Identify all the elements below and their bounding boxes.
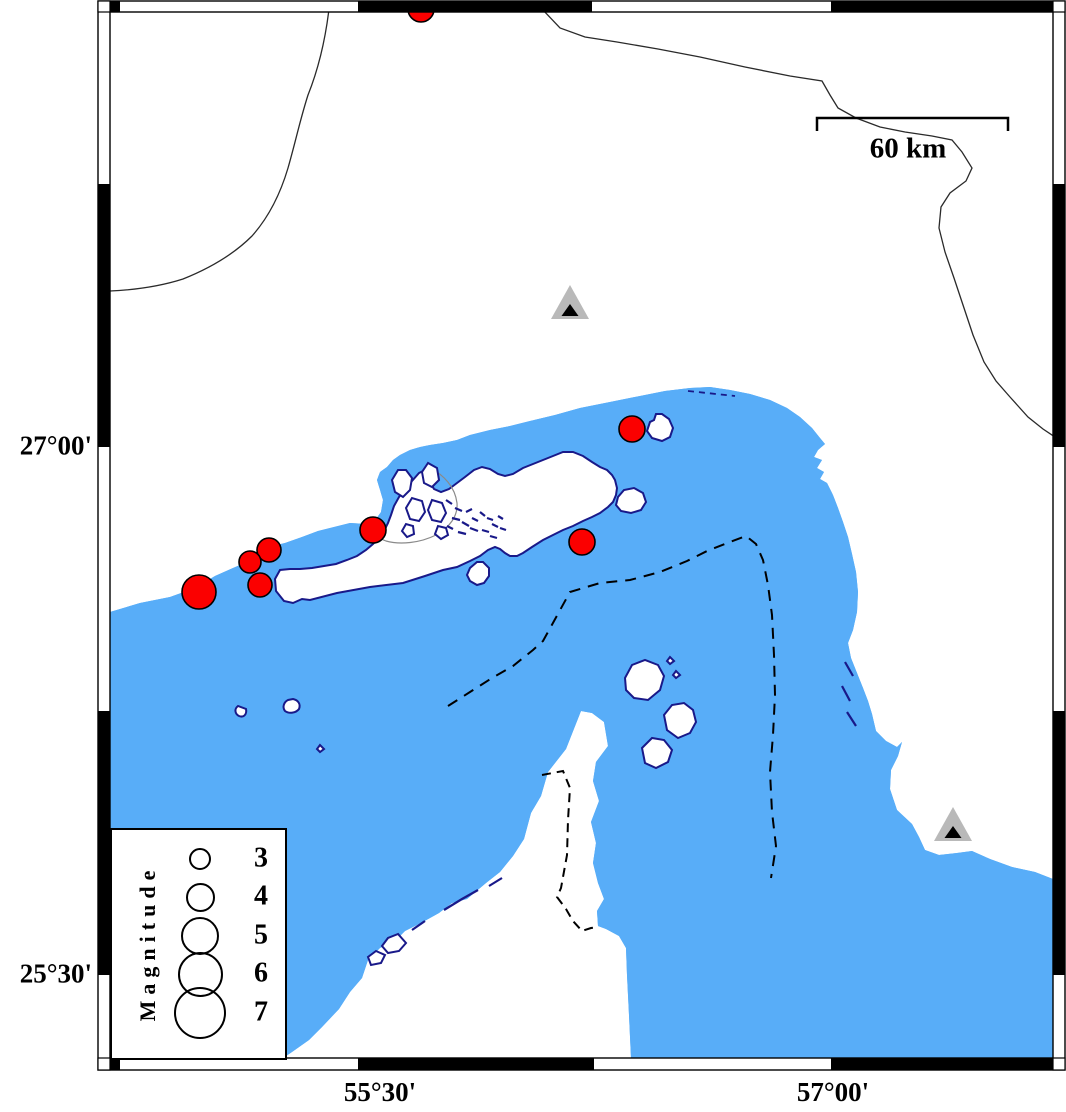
legend-magnitude-circle (189, 848, 211, 870)
earthquake-marker (239, 551, 261, 573)
latitude-label: 25°30' (0, 958, 92, 989)
legend-title: Magnitude (135, 865, 161, 1022)
earthquake-marker (360, 517, 386, 543)
legend-magnitude-value: 3 (254, 842, 268, 874)
latitude-label: 27°00' (0, 430, 92, 461)
longitude-label: 55°30' (344, 1077, 416, 1108)
seismicity-map-figure: 27°00'25°30' 55°30'57°00' 60 km Magnitud… (0, 0, 1066, 1112)
legend-magnitude-circle (186, 883, 215, 912)
longitude-label: 57°00' (797, 1077, 869, 1108)
earthquake-marker (569, 529, 595, 555)
earthquake-marker (619, 416, 645, 442)
scalebar-label: 60 km (870, 133, 947, 166)
legend-magnitude-value: 4 (254, 880, 268, 912)
magnitude-legend: Magnitude 34567 (110, 828, 287, 1060)
legend-magnitude-value: 5 (254, 919, 268, 951)
legend-magnitude-circle (174, 987, 226, 1039)
earthquake-marker (182, 575, 216, 609)
earthquake-marker (248, 573, 272, 597)
legend-magnitude-value: 6 (254, 957, 268, 989)
legend-magnitude-circle (181, 917, 219, 955)
legend-magnitude-value: 7 (254, 996, 268, 1028)
